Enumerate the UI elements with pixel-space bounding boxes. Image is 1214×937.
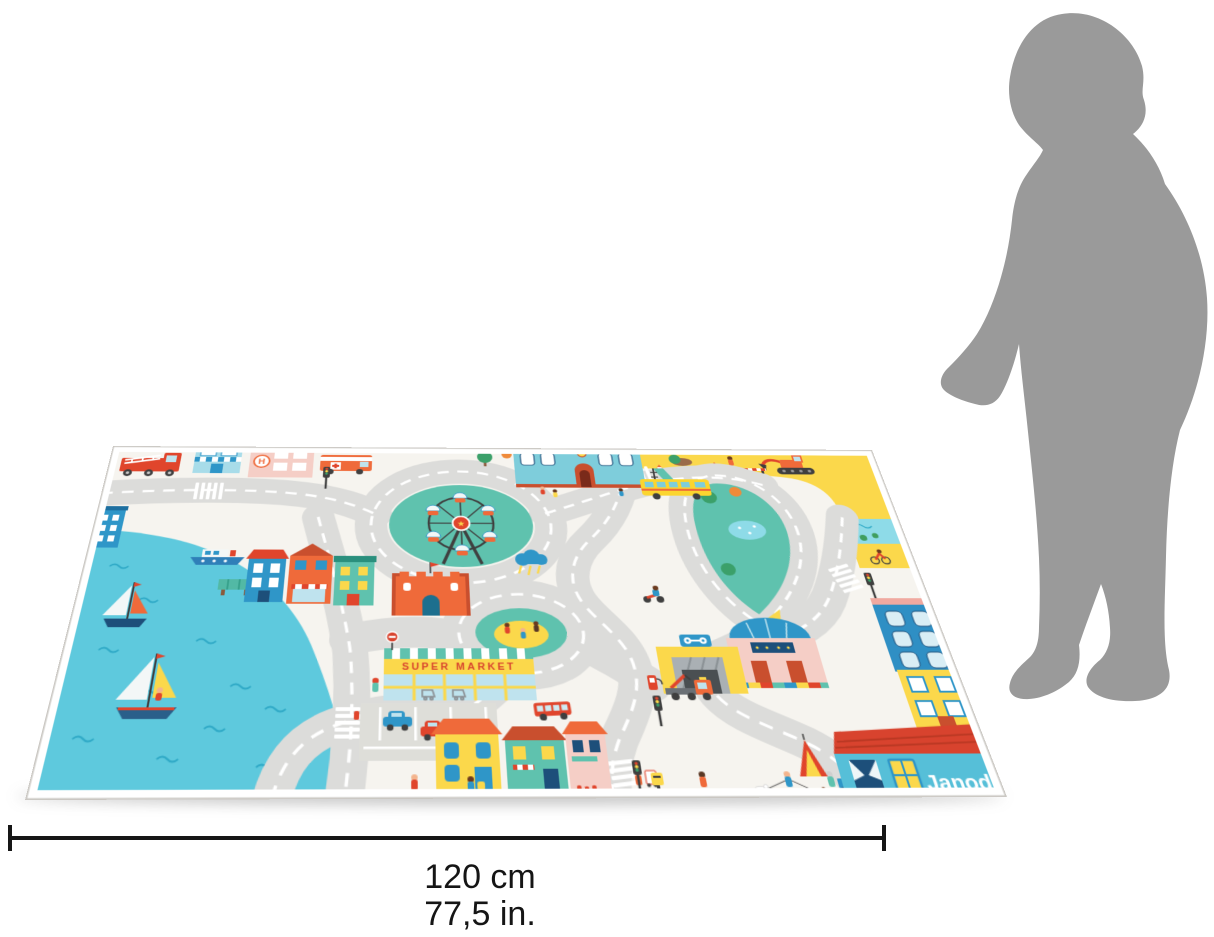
product-photo: ★ — [0, 0, 1214, 937]
dimension-cap-right — [882, 825, 886, 851]
dimension-cm: 120 cm — [280, 859, 680, 896]
child-silhouette — [0, 0, 1214, 937]
dimension-line — [10, 836, 884, 840]
dimension-labels: 120 cm 77,5 in. — [280, 859, 680, 933]
child-silhouette-shape — [941, 13, 1208, 701]
dimension-inches: 77,5 in. — [280, 896, 680, 933]
